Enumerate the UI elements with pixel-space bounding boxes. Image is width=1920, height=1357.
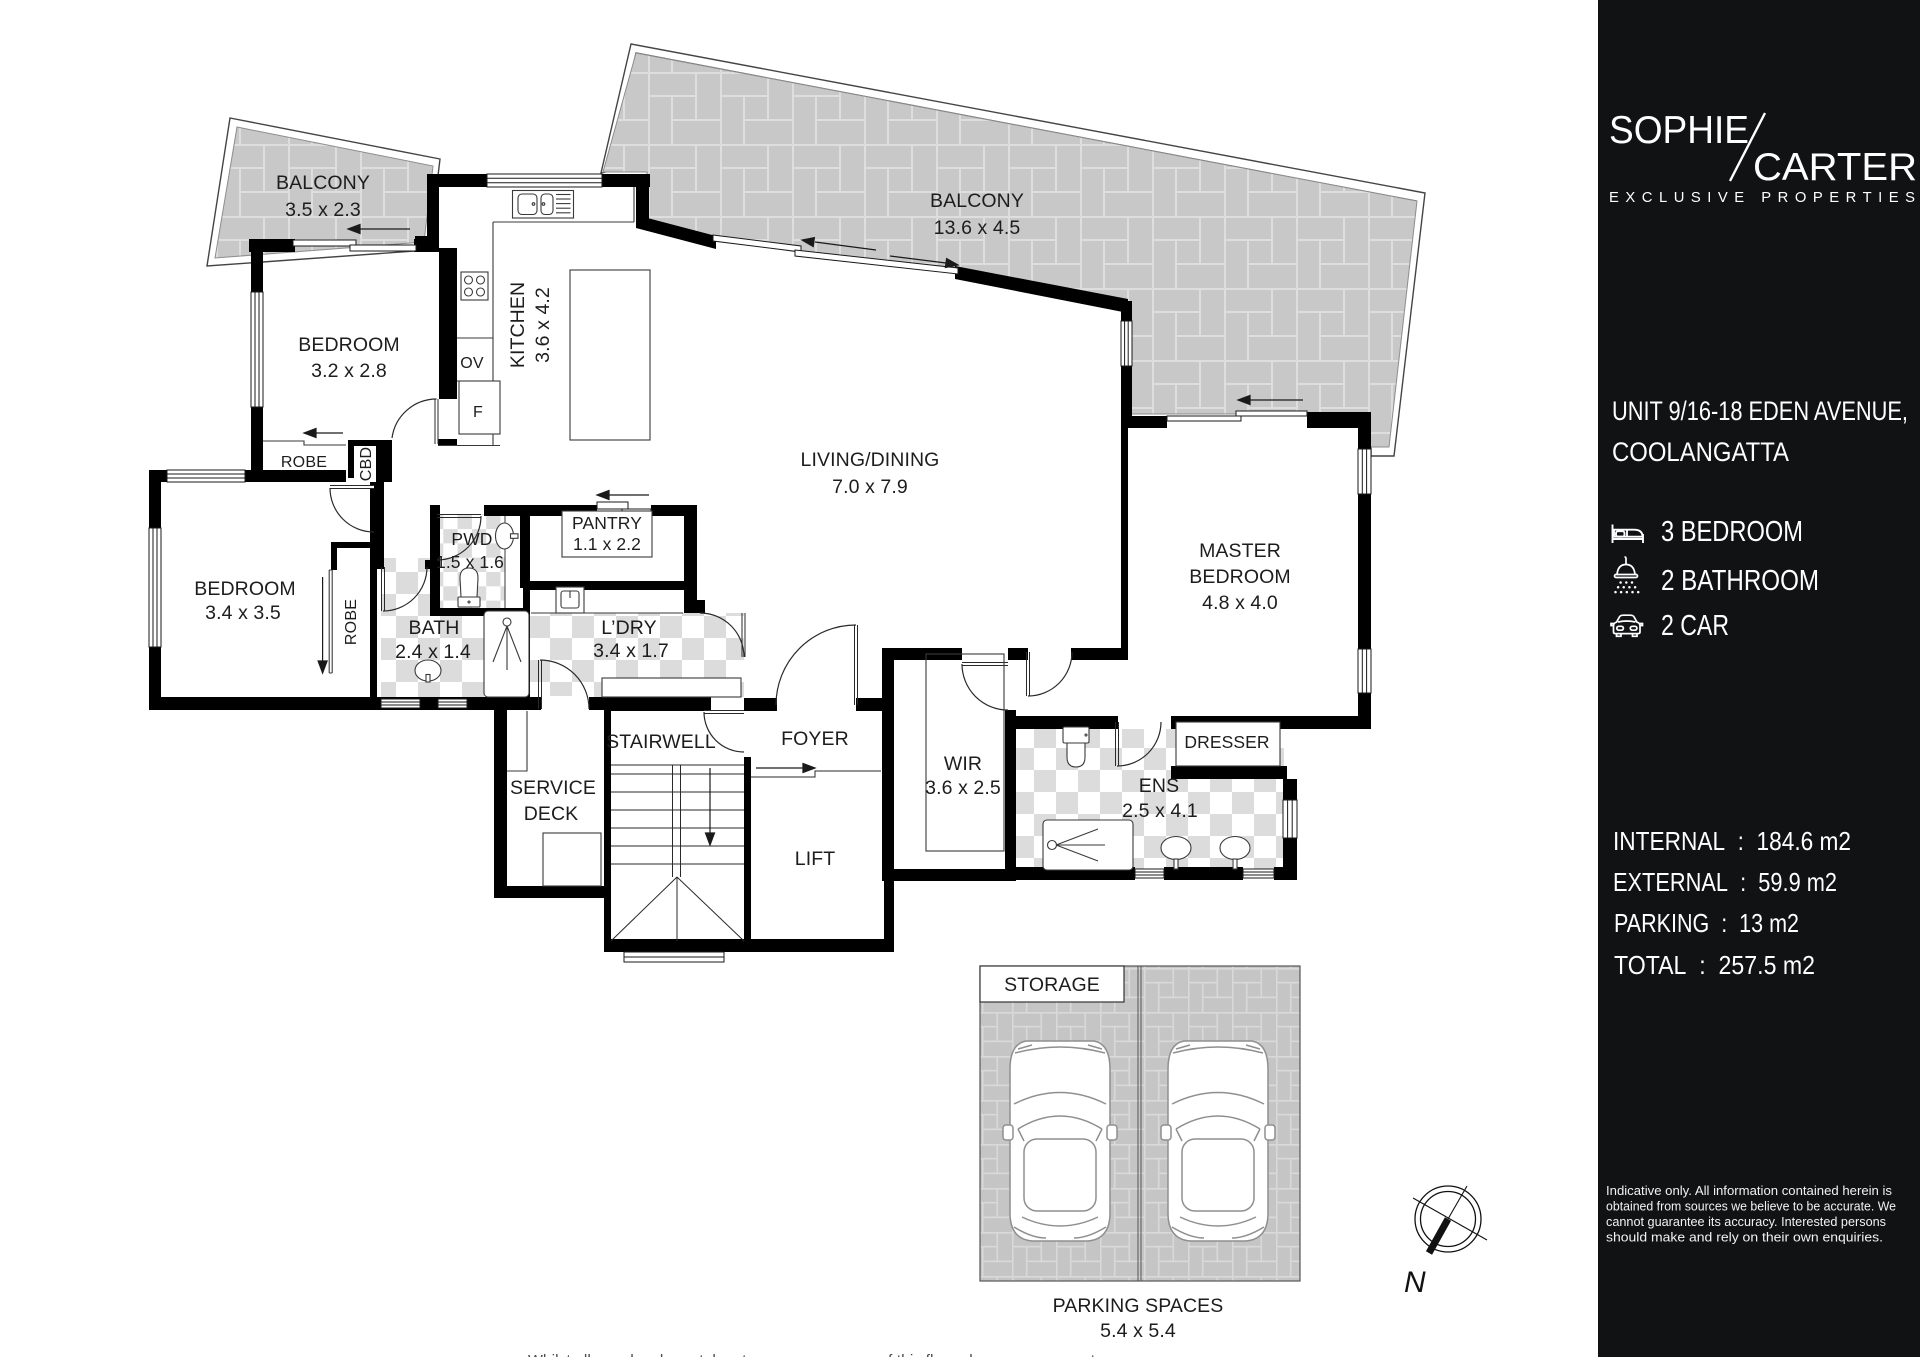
svg-text:4.8 x 4.0: 4.8 x 4.0 [1202, 592, 1278, 614]
svg-text:BALCONY: BALCONY [930, 190, 1024, 212]
svg-text:BEDROOM: BEDROOM [298, 334, 399, 356]
svg-text:PANTRY: PANTRY [572, 513, 642, 533]
svg-text:MASTER: MASTER [1199, 540, 1281, 562]
svg-text:2.4 x 1.4: 2.4 x 1.4 [395, 641, 471, 663]
svg-text:ROBE: ROBE [281, 454, 327, 471]
svg-text:N: N [1404, 1266, 1426, 1299]
svg-text:BATH: BATH [409, 617, 460, 639]
svg-text:1.5 x 1.6: 1.5 x 1.6 [436, 552, 504, 572]
svg-text:DECK: DECK [524, 803, 579, 825]
svg-text:LIFT: LIFT [795, 848, 836, 870]
svg-text:CARTER: CARTER [1753, 146, 1917, 189]
svg-text:obtained from sources we belie: obtained from sources we believe to be a… [1606, 1199, 1896, 1214]
svg-text:3.4 x 3.5: 3.4 x 3.5 [205, 602, 281, 624]
svg-text:SERVICE: SERVICE [510, 777, 596, 799]
svg-text:PWD: PWD [451, 529, 492, 549]
svg-text:FOYER: FOYER [781, 728, 849, 750]
svg-text:KITCHEN: KITCHEN [507, 282, 529, 368]
svg-text:5.4 x 5.4: 5.4 x 5.4 [1100, 1320, 1176, 1342]
svg-text:3.6 x 2.5: 3.6 x 2.5 [925, 777, 1001, 799]
svg-text:ENS: ENS [1139, 775, 1179, 797]
svg-text:3.2 x 2.8: 3.2 x 2.8 [311, 360, 387, 382]
svg-text:2 CAR: 2 CAR [1661, 610, 1729, 642]
svg-text:3.4 x 1.7: 3.4 x 1.7 [593, 640, 669, 662]
svg-text:13.6 x 4.5: 13.6 x 4.5 [934, 217, 1021, 239]
svg-text:COOLANGATTA: COOLANGATTA [1612, 437, 1789, 467]
svg-text:7.0 x 7.9: 7.0 x 7.9 [832, 476, 908, 498]
svg-text:STORAGE: STORAGE [1004, 974, 1100, 996]
svg-text:1.1 x 2.2: 1.1 x 2.2 [573, 534, 641, 554]
svg-text:Indicative only. All informati: Indicative only. All information contain… [1606, 1183, 1892, 1198]
svg-text:PARKING : 13 m2: PARKING : 13 m2 [1614, 908, 1799, 938]
svg-text:cannot guarantee its accuracy.: cannot guarantee its accuracy. Intereste… [1606, 1214, 1886, 1229]
svg-text:BEDROOM: BEDROOM [194, 578, 295, 600]
svg-text:LIVING/DINING: LIVING/DINING [801, 449, 940, 471]
svg-text:SOPHIE: SOPHIE [1609, 109, 1749, 152]
svg-text:OV: OV [460, 355, 484, 372]
svg-text:TOTAL : 257.5 m2: TOTAL : 257.5 m2 [1614, 950, 1815, 980]
svg-text:BALCONY: BALCONY [276, 172, 370, 194]
svg-text:3.5 x 2.3: 3.5 x 2.3 [285, 199, 361, 221]
svg-text:F: F [473, 404, 483, 421]
svg-text:2 BATHROOM: 2 BATHROOM [1661, 565, 1819, 597]
svg-text:BEDROOM: BEDROOM [1189, 566, 1290, 588]
svg-text:should make and rely on their: should make and rely on their own enquir… [1606, 1230, 1883, 1245]
svg-text:ROBE: ROBE [343, 599, 360, 645]
svg-text:L’DRY: L’DRY [601, 617, 656, 639]
svg-text:UNIT 9/16-18 EDEN AVENUE,: UNIT 9/16-18 EDEN AVENUE, [1612, 396, 1908, 426]
svg-text:3 BEDROOM: 3 BEDROOM [1661, 516, 1803, 548]
svg-text:DRESSER: DRESSER [1184, 732, 1269, 752]
svg-text:Whilst all care has been taken: Whilst all care has been taken to ensure… [528, 1352, 1103, 1357]
svg-text:3.6 x 4.2: 3.6 x 4.2 [532, 287, 554, 363]
svg-text:WIR: WIR [944, 753, 982, 775]
svg-text:STAIRWELL: STAIRWELL [606, 731, 716, 753]
svg-text:CBD: CBD [358, 447, 375, 481]
svg-text:2.5 x 4.1: 2.5 x 4.1 [1122, 800, 1198, 822]
svg-text:EXTERNAL : 59.9 m2: EXTERNAL : 59.9 m2 [1613, 867, 1837, 897]
svg-text:INTERNAL : 184.6 m2: INTERNAL : 184.6 m2 [1613, 826, 1851, 856]
svg-text:PARKING SPACES: PARKING SPACES [1053, 1295, 1224, 1317]
